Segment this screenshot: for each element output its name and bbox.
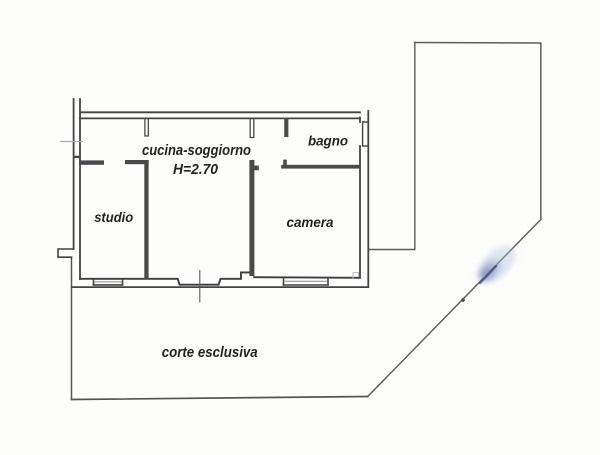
svg-text:camera: camera — [287, 214, 334, 230]
svg-text:corte esclusiva: corte esclusiva — [162, 344, 258, 361]
svg-text:bagno: bagno — [308, 133, 348, 149]
svg-text:studio: studio — [94, 209, 133, 225]
svg-text:cucina-soggiorno: cucina-soggiorno — [142, 142, 251, 159]
svg-text:H=2.70: H=2.70 — [173, 161, 219, 178]
